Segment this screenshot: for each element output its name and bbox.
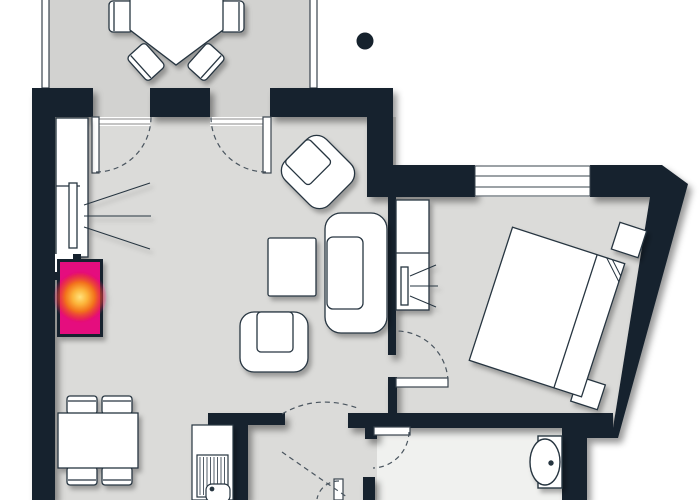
- wall-balcony-pier: [150, 88, 210, 117]
- floor-plan-canvas: [0, 0, 700, 500]
- wall-bedroom-bottom: [348, 413, 613, 428]
- wall-living-bedroom: [388, 197, 396, 355]
- balcony-door-threshold: [210, 117, 270, 126]
- dining-chair: [102, 467, 132, 485]
- location-dot: [357, 33, 374, 50]
- balcony-wall-left: [42, 0, 49, 88]
- coffee-table: [268, 238, 316, 296]
- bathroom-door-leaf: [374, 427, 410, 435]
- bathroom-sink: [530, 439, 560, 485]
- wall-bath-door-jamb-bottom: [363, 477, 375, 500]
- dining-chair: [67, 467, 97, 485]
- bedroom-door-leaf: [396, 378, 448, 387]
- fireplace: [53, 254, 107, 337]
- fireplace-glow: [53, 270, 107, 324]
- balcony-wall-right: [310, 0, 317, 88]
- balcony-door-threshold: [93, 117, 150, 126]
- wall-kitchen-top: [208, 413, 285, 425]
- dining-table: [58, 413, 138, 468]
- dining-chair: [102, 396, 132, 414]
- kitchen-sink-bowl: [206, 484, 230, 500]
- wall-bedroom-top: [393, 165, 475, 197]
- bathroom-faucet: [549, 461, 553, 465]
- clothes-rail: [69, 183, 77, 248]
- sofa: [325, 213, 387, 333]
- bedroom-window: [475, 166, 590, 196]
- clothes-rail: [401, 267, 408, 305]
- armchair: [240, 312, 308, 372]
- floor-plan: [0, 0, 700, 500]
- dining-chair: [67, 396, 97, 414]
- balcony-door-leaf: [263, 117, 271, 173]
- balcony-door-leaf: [92, 117, 99, 173]
- kitchen-unit: [192, 425, 233, 500]
- kitchen-faucet: [210, 487, 214, 491]
- wall-kitchen-stem: [233, 425, 248, 500]
